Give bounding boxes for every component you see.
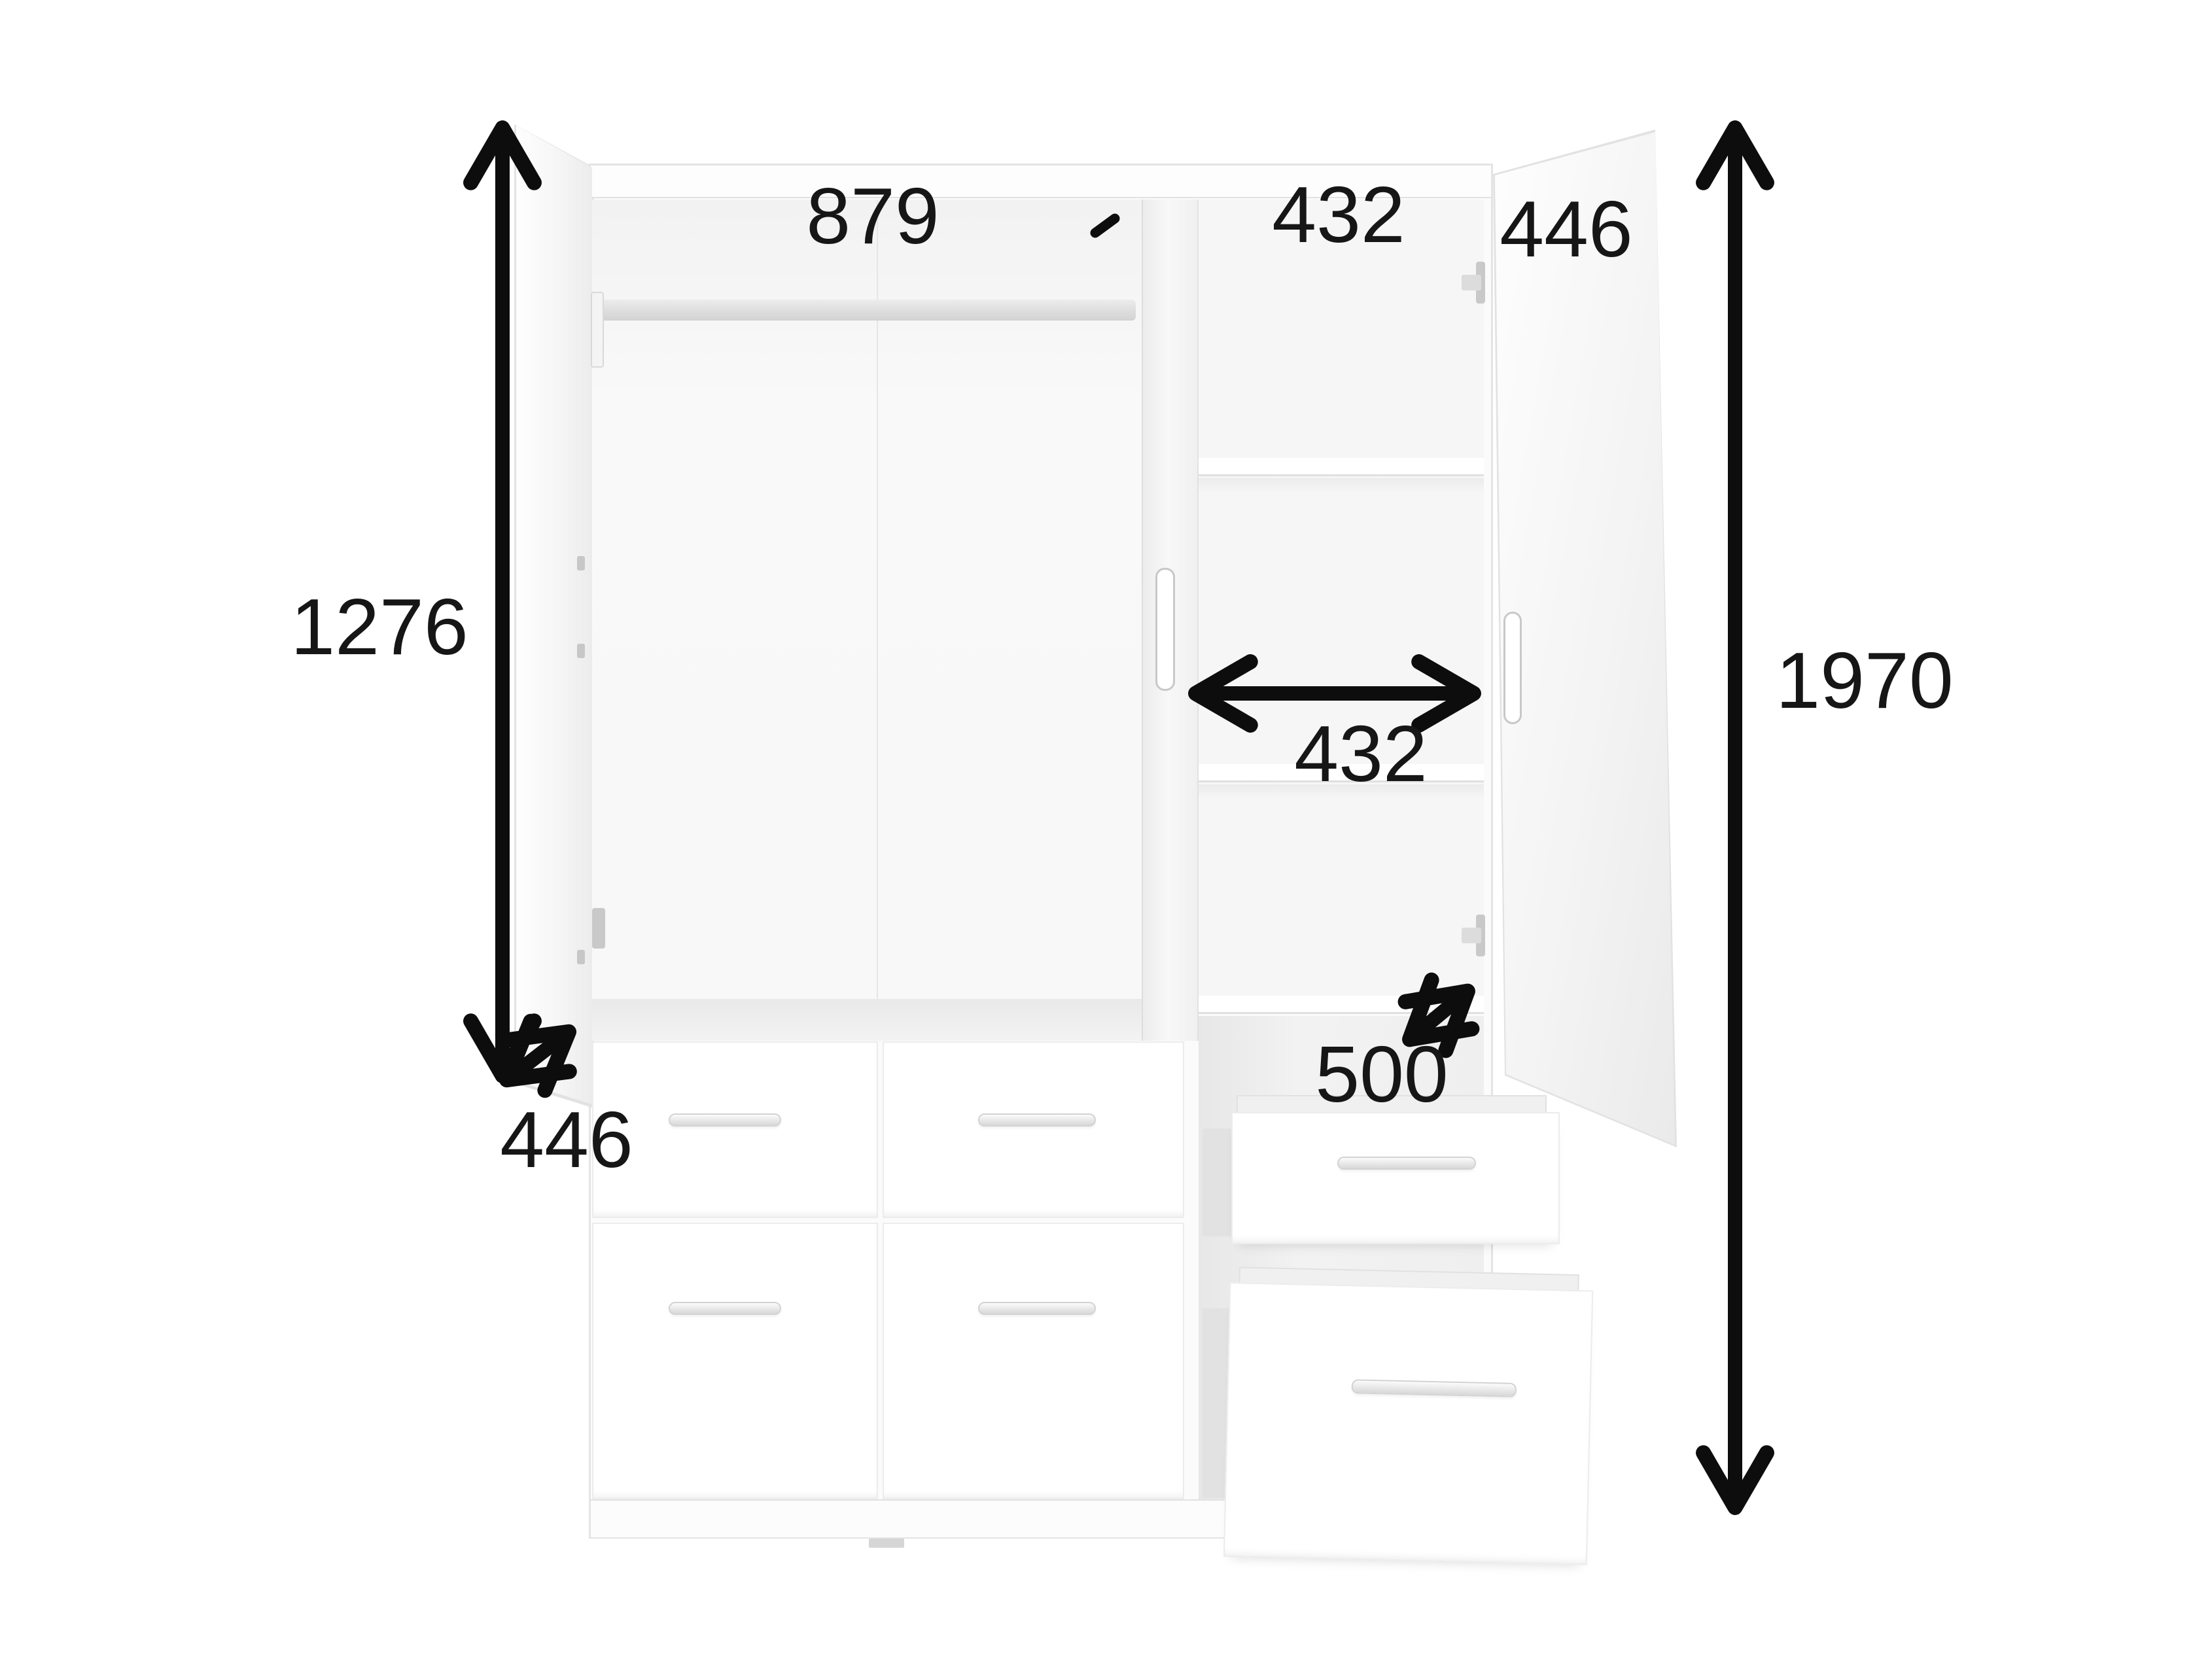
drawer-handle [978,1302,1096,1315]
open-drawer-lower [1223,1266,1598,1571]
left-compartment-floor [591,999,1142,1041]
drawer-front [592,1041,878,1218]
left-door-hinge-dot [577,950,585,964]
open-drawer-upper-handle [1337,1157,1476,1170]
drawer-front [592,1223,878,1499]
right-door-hinge-plate [1462,928,1481,943]
shelf-top [1199,458,1484,476]
label-overall-height: 1970 [1776,640,1953,720]
left-door-hinge-dot [577,644,585,658]
shelf-bottom [1199,996,1484,1014]
drawer-handle [669,1113,781,1126]
right-compartment-interior [1199,200,1484,996]
middle-door-handle [1155,568,1175,691]
hanging-rail [597,300,1136,321]
right-door-handle [1503,612,1522,724]
left-door-hinge-dot [577,556,585,570]
center-foot [869,1539,904,1548]
wardrobe-dimension-diagram: 879 432 446 1276 432 1970 446 500 [0,0,2212,1659]
open-drawer-lower-front [1223,1282,1593,1565]
right-door-hinge-plate [1462,275,1481,290]
hanging-rail-bracket [591,292,604,368]
drawer-handle [978,1113,1096,1126]
label-middle-shelf-width: 432 [1294,714,1428,794]
label-interior-height: 1276 [290,587,468,667]
label-bottom-left-depth: 446 [500,1100,633,1179]
label-top-door-depth: 446 [1500,189,1633,269]
drawer-front [883,1223,1184,1499]
side-wall-hinge [592,908,605,949]
label-top-shelf-width: 432 [1272,175,1405,254]
open-drawer-upper [1231,1112,1560,1244]
drawer-front [883,1041,1184,1218]
shelf-top-shadow [1199,478,1484,493]
label-drawer-depth: 500 [1315,1034,1448,1114]
label-interior-width: 879 [806,176,939,256]
drawer-handle [669,1302,781,1315]
